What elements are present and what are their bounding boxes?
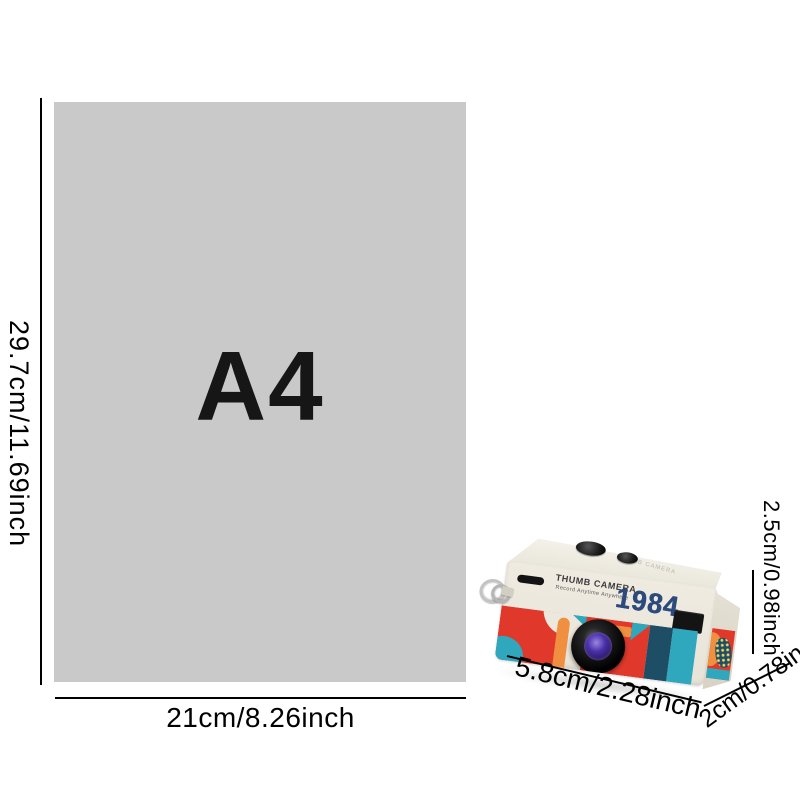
viewfinder-slot-icon: [517, 574, 545, 585]
paper-height-label: 29.7cm/11.69inch: [3, 320, 34, 547]
camera-height-label: 2.5cm/0.98inch: [758, 500, 784, 656]
camera-lens-glass: [582, 631, 613, 662]
side-flower-dots: [714, 637, 732, 668]
camera-side-artwork: [706, 628, 735, 681]
paper-width-dimension-line: [55, 697, 466, 699]
paper-width-label: 21cm/8.26inch: [55, 702, 466, 734]
camera-model-year-text: 1984: [613, 582, 681, 624]
paper-height-dimension-line: [40, 98, 42, 685]
a4-paper-sheet: A4: [54, 102, 466, 682]
side-teal-stripe: [706, 668, 730, 681]
paper-size-label: A4: [195, 330, 324, 443]
camera-height-dimension-line: [752, 570, 754, 654]
